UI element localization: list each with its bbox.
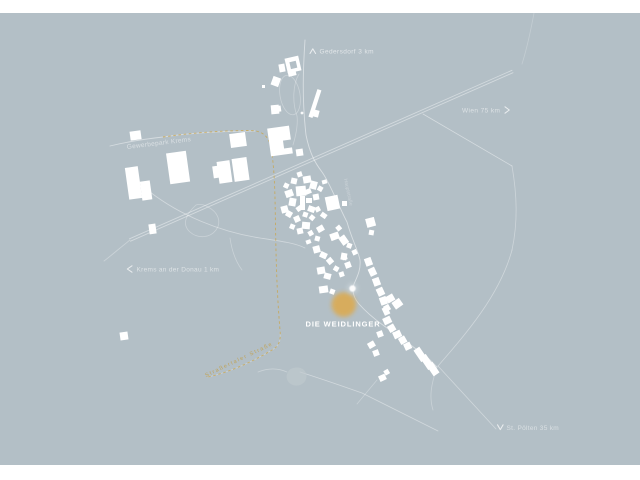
svg-text:Gedersdorf 3 km: Gedersdorf 3 km bbox=[320, 49, 374, 56]
svg-text:DIE WEIDLINGER: DIE WEIDLINGER bbox=[306, 320, 381, 329]
svg-text:Wien 75 km: Wien 75 km bbox=[462, 108, 500, 115]
svg-text:St. Pölten 35 km: St. Pölten 35 km bbox=[507, 425, 560, 432]
svg-text:Krems an der Donau 1 km: Krems an der Donau 1 km bbox=[137, 267, 220, 274]
